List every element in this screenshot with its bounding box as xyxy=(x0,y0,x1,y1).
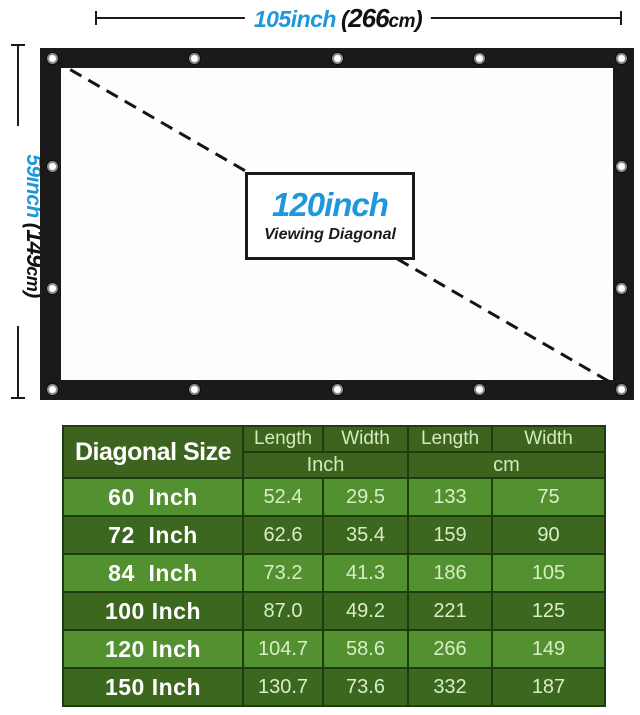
cell-cm-width: 90 xyxy=(492,516,605,554)
header-diagonal-size: Diagonal Size xyxy=(63,426,243,478)
table-row: 84 Inch 73.2 41.3 186 105 xyxy=(63,554,605,592)
dimension-tick xyxy=(11,397,25,399)
header-unit-inch: Inch xyxy=(243,452,408,478)
cell-inch-length: 104.7 xyxy=(243,630,323,668)
dimension-tick xyxy=(95,11,97,25)
row-label: 84 Inch xyxy=(63,554,243,592)
table-row: 120 Inch 104.7 58.6 266 149 xyxy=(63,630,605,668)
viewing-diagonal-box: 120inch Viewing Diagonal xyxy=(245,172,415,260)
projector-screen: 120inch Viewing Diagonal xyxy=(40,48,634,400)
row-label: 100 Inch xyxy=(63,592,243,630)
cell-cm-length: 133 xyxy=(408,478,492,516)
cell-cm-width: 105 xyxy=(492,554,605,592)
grommet xyxy=(332,384,343,395)
width-inch-value: 105inch xyxy=(254,6,336,32)
row-label: 150 Inch xyxy=(63,668,243,706)
cell-cm-width: 149 xyxy=(492,630,605,668)
grommet xyxy=(616,53,627,64)
header-width-inch: Width xyxy=(323,426,408,452)
cell-inch-width: 41.3 xyxy=(323,554,408,592)
cell-inch-length: 87.0 xyxy=(243,592,323,630)
table-row: 100 Inch 87.0 49.2 221 125 xyxy=(63,592,605,630)
row-label: 120 Inch xyxy=(63,630,243,668)
size-spec-table: Diagonal Size Length Width Length Width … xyxy=(62,425,606,707)
cell-inch-length: 130.7 xyxy=(243,668,323,706)
grommet xyxy=(47,53,58,64)
width-cm-unit: cm xyxy=(389,11,415,32)
cell-inch-width: 58.6 xyxy=(323,630,408,668)
table-row: 72 Inch 62.6 35.4 159 90 xyxy=(63,516,605,554)
cell-cm-length: 332 xyxy=(408,668,492,706)
diagonal-caption: Viewing Diagonal xyxy=(264,226,396,244)
cell-inch-length: 62.6 xyxy=(243,516,323,554)
dimension-tick xyxy=(11,44,25,46)
cell-cm-length: 266 xyxy=(408,630,492,668)
grommet xyxy=(616,161,627,172)
grommet xyxy=(189,53,200,64)
grommet xyxy=(474,384,485,395)
cell-cm-length: 221 xyxy=(408,592,492,630)
product-infographic: 105inch(266cm) 59inch(149cm) 120in xyxy=(0,0,640,715)
cell-inch-width: 73.6 xyxy=(323,668,408,706)
table-row: 60 Inch 52.4 29.5 133 75 xyxy=(63,478,605,516)
cell-inch-width: 29.5 xyxy=(323,478,408,516)
cell-cm-width: 75 xyxy=(492,478,605,516)
cell-cm-length: 186 xyxy=(408,554,492,592)
grommet xyxy=(474,53,485,64)
grommet xyxy=(189,384,200,395)
grommet xyxy=(47,283,58,294)
table-row: 150 Inch 130.7 73.6 332 187 xyxy=(63,668,605,706)
cell-inch-width: 49.2 xyxy=(323,592,408,630)
header-unit-cm: cm xyxy=(408,452,605,478)
header-width-cm: Width xyxy=(492,426,605,452)
grommet xyxy=(47,161,58,172)
paren-close: ) xyxy=(415,6,422,32)
header-length-inch: Length xyxy=(243,426,323,452)
grommet xyxy=(332,53,343,64)
grommet xyxy=(47,384,58,395)
cell-cm-width: 187 xyxy=(492,668,605,706)
dimension-tick xyxy=(620,11,622,25)
grommet xyxy=(616,384,627,395)
cell-inch-length: 52.4 xyxy=(243,478,323,516)
cell-cm-length: 159 xyxy=(408,516,492,554)
header-length-cm: Length xyxy=(408,426,492,452)
cell-inch-width: 35.4 xyxy=(323,516,408,554)
width-cm-value: 266 xyxy=(348,3,388,33)
row-label: 72 Inch xyxy=(63,516,243,554)
width-dimension-label: 105inch(266cm) xyxy=(245,2,431,38)
cell-cm-width: 125 xyxy=(492,592,605,630)
row-label: 60 Inch xyxy=(63,478,243,516)
cell-inch-length: 73.2 xyxy=(243,554,323,592)
diagonal-size-value: 120inch xyxy=(272,188,388,223)
grommet xyxy=(616,283,627,294)
